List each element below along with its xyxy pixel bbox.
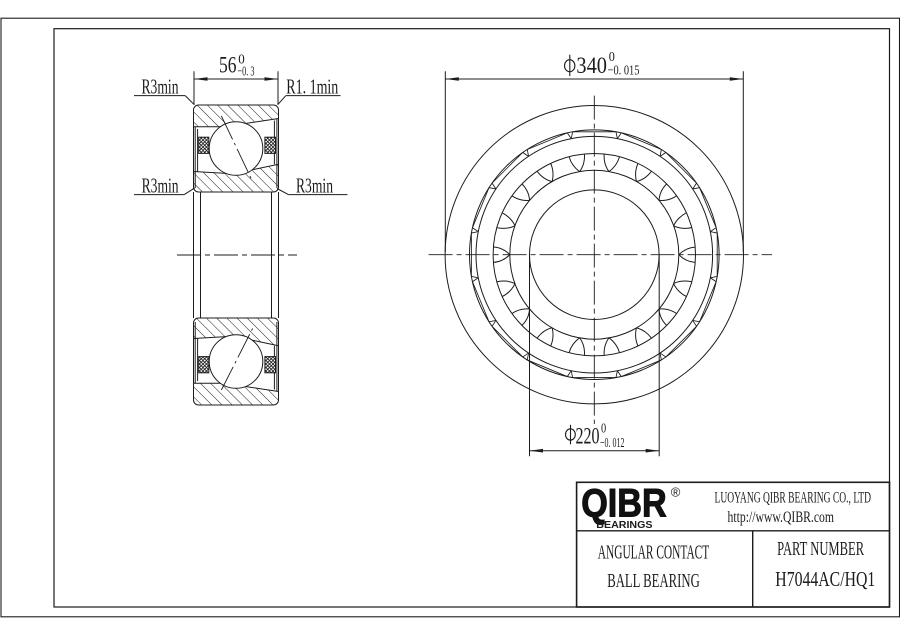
svg-text:56: 56 (219, 52, 237, 77)
svg-text:BEARINGS: BEARINGS (596, 519, 652, 531)
svg-text:H7044AC/HQ1: H7044AC/HQ1 (775, 567, 875, 591)
svg-text:R3min: R3min (296, 173, 333, 197)
svg-text:R3min: R3min (142, 74, 179, 98)
svg-text:BALL BEARING: BALL BEARING (607, 571, 700, 592)
svg-text:®: ® (671, 485, 681, 500)
svg-text:R1. 1min: R1. 1min (286, 74, 338, 98)
svg-text:−0. 015: −0. 015 (608, 63, 640, 78)
svg-text:−0. 012: −0. 012 (600, 436, 625, 451)
svg-text:LUOYANG QIBR BEARING CO., LTD: LUOYANG QIBR BEARING CO., LTD (715, 489, 872, 506)
svg-text:PART NUMBER: PART NUMBER (777, 539, 864, 560)
svg-text:220: 220 (576, 424, 600, 449)
svg-text:0: 0 (601, 422, 606, 437)
svg-text:−0. 3: −0. 3 (238, 65, 255, 80)
svg-text:ANGULAR CONTACT: ANGULAR CONTACT (598, 543, 710, 564)
svg-text:R3min: R3min (142, 173, 179, 197)
svg-text:340: 340 (576, 53, 607, 78)
svg-text:http://www.QIBR.com: http://www.QIBR.com (728, 509, 835, 526)
